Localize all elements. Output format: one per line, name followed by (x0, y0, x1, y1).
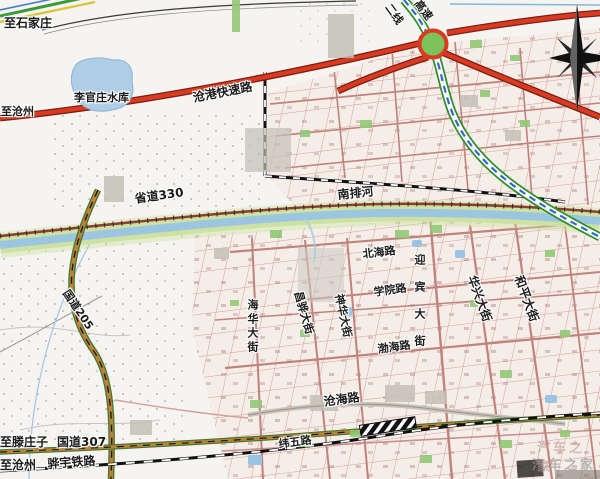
label-to-cangzhou-west: 至沧州 (1, 106, 34, 117)
label-reservoir: 李官庄水库 (74, 92, 129, 103)
label-to-shijiazhuang: 至石家庄 (4, 17, 52, 29)
label-national-road-307: 国道307 (57, 436, 106, 448)
interchange-roundabout (420, 31, 447, 58)
map-drawing (0, 0, 600, 479)
watermark-line2: 汽车之家 (532, 454, 596, 473)
label-to-cangzhou-south: 至沧州 (0, 459, 36, 471)
label-huayu-railway: 骅宇铁路 (47, 455, 96, 470)
label-yingbin-street: 迎宾大街 (414, 254, 425, 362)
label-to-tengzhuangzi: 至滕庄子 (0, 436, 48, 448)
planning-map-canvas: 至石家庄 沧港快速路 至沧州 李官庄水库 二线 高速 省道330 南排河 北海路… (0, 0, 600, 479)
label-nanpai-river: 南排河 (337, 185, 374, 201)
label-haihua-street: 海华大街 (247, 299, 258, 355)
